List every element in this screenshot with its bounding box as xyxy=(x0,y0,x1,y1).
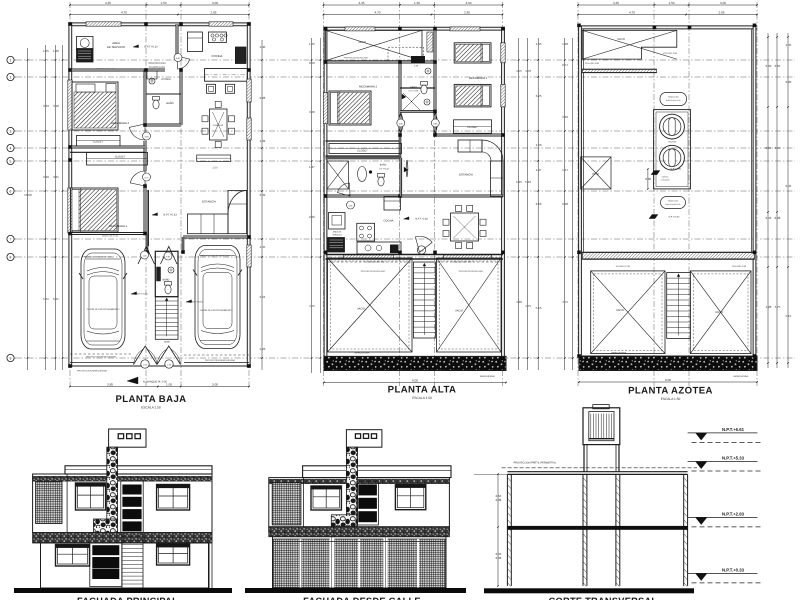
svg-text:1.50: 1.50 xyxy=(160,1,166,5)
svg-text:AZOTEA: AZOTEA xyxy=(662,176,670,179)
svg-text:N.P.T.+2.83: N.P.T.+2.83 xyxy=(409,90,419,93)
svg-text:AREA DE: AREA DE xyxy=(333,231,342,234)
svg-text:6: 6 xyxy=(10,189,12,193)
svg-text:3.33: 3.33 xyxy=(43,104,49,108)
svg-text:ESCALA 1:50: ESCALA 1:50 xyxy=(412,396,432,400)
svg-text:PROYECCION MARQUESINA: PROYECCION MARQUESINA xyxy=(86,356,117,359)
svg-text:BAÑO: BAÑO xyxy=(166,101,173,105)
svg-text:N.P.T.+0.15: N.P.T.+0.15 xyxy=(191,301,203,304)
svg-text:N.P.T.+2.83: N.P.T.+2.83 xyxy=(722,511,745,516)
svg-text:4.75: 4.75 xyxy=(525,304,531,308)
svg-text:BAÑO: BAÑO xyxy=(163,278,170,282)
svg-text:4.75: 4.75 xyxy=(774,305,780,309)
svg-text:4.28: 4.28 xyxy=(516,300,522,304)
svg-text:2.85: 2.85 xyxy=(464,10,470,14)
svg-text:RECAMARA 1: RECAMARA 1 xyxy=(469,76,487,80)
svg-text:PROYECCION PRETIL PERIMETRAL: PROYECCION PRETIL PERIMETRAL xyxy=(514,462,557,465)
svg-text:3.90: 3.90 xyxy=(43,175,49,179)
svg-text:3.47: 3.47 xyxy=(774,146,780,150)
svg-text:VENTANA 1.05 X 1.00: VENTANA 1.05 X 1.00 xyxy=(96,67,114,70)
svg-text:3.35: 3.35 xyxy=(358,1,364,5)
svg-text:BARDA 1.80 X 6.00: BARDA 1.80 X 6.00 xyxy=(102,235,118,238)
svg-text:2.98: 2.98 xyxy=(774,216,780,220)
svg-text:A TINACOS: A TINACOS xyxy=(661,179,671,182)
svg-text:2.98: 2.98 xyxy=(562,202,568,206)
svg-text:N. BANQUETA -0.30: N. BANQUETA -0.30 xyxy=(143,381,167,384)
svg-text:N.P.T.+2.83: N.P.T.+2.83 xyxy=(415,218,428,221)
svg-text:MARQUESINA: MARQUESINA xyxy=(611,352,626,355)
svg-text:8.00: 8.00 xyxy=(412,378,418,382)
svg-text:3.81: 3.81 xyxy=(53,175,59,179)
svg-text:1.02: 1.02 xyxy=(259,139,265,143)
svg-text:N.P.T.+0.33: N.P.T.+0.33 xyxy=(722,567,745,572)
svg-text:VACIO: VACIO xyxy=(358,41,366,44)
svg-text:3.00: 3.00 xyxy=(212,1,218,5)
svg-text:SUBE: SUBE xyxy=(164,341,170,344)
svg-text:N.P.T.+6.61: N.P.T.+6.61 xyxy=(722,427,745,432)
svg-text:ESTANCIA: ESTANCIA xyxy=(459,173,473,177)
svg-text:TINACO 450: TINACO 450 xyxy=(668,200,678,203)
svg-text:5.41: 5.41 xyxy=(43,297,49,301)
svg-text:FACHADA DESDE CALLE: FACHADA DESDE CALLE xyxy=(303,596,421,600)
svg-text:VOLADO 0.90: VOLADO 0.90 xyxy=(585,62,600,65)
svg-text:PROYECCION VOLADO: PROYECCION VOLADO xyxy=(361,270,386,273)
svg-text:1.37: 1.37 xyxy=(536,168,542,172)
svg-text:PROYECCION VOLADO: PROYECCION VOLADO xyxy=(344,57,369,60)
svg-text:VACIO: VACIO xyxy=(715,311,723,314)
svg-text:1.05: 1.05 xyxy=(536,143,542,147)
svg-text:1.50: 1.50 xyxy=(414,1,420,5)
svg-text:CORTE TRANSVERSAL: CORTE TRANSVERSAL xyxy=(549,596,658,600)
svg-text:0.90: 0.90 xyxy=(176,57,180,60)
svg-text:VOLADO 0.30: VOLADO 0.30 xyxy=(732,265,747,268)
svg-text:CLOSET: CLOSET xyxy=(115,156,126,159)
svg-text:VACIO: VACIO xyxy=(617,38,625,41)
svg-text:CAJON DE ESTACIONAMIENTO: CAJON DE ESTACIONAMIENTO xyxy=(87,308,120,311)
svg-text:VOLADO 0.30: VOLADO 0.30 xyxy=(616,265,631,268)
svg-text:N.P.T.+5.81: N.P.T.+5.81 xyxy=(671,168,682,171)
svg-text:5.01: 5.01 xyxy=(53,297,59,301)
svg-text:0.80: 0.80 xyxy=(433,122,437,125)
svg-text:ESCALA 1:50: ESCALA 1:50 xyxy=(661,397,681,401)
svg-text:RECAMARA 2: RECAMARA 2 xyxy=(111,121,129,125)
svg-text:VACIO: VACIO xyxy=(592,173,599,176)
svg-text:CAJON DE ESTACIONAMIENTO: CAJON DE ESTACIONAMIENTO xyxy=(200,309,233,312)
svg-text:PLANTA BAJA: PLANTA BAJA xyxy=(115,394,186,405)
svg-text:PROYECCION PLANTA ALTA: PROYECCION PLANTA ALTA xyxy=(82,256,112,259)
svg-text:LETRINA: LETRINA xyxy=(161,78,171,81)
svg-text:2: 2 xyxy=(10,75,12,79)
svg-text:1.05: 1.05 xyxy=(43,49,49,53)
svg-text:N.P.T.+2.83: N.P.T.+2.83 xyxy=(379,168,389,171)
svg-text:RECAMARA 2: RECAMARA 2 xyxy=(359,85,377,89)
svg-text:4.55: 4.55 xyxy=(516,69,522,73)
svg-text:3.00: 3.00 xyxy=(465,1,471,5)
svg-text:3.32: 3.32 xyxy=(765,146,771,150)
svg-text:PROYECCION MARQUESINA: PROYECCION MARQUESINA xyxy=(205,359,236,362)
svg-text:2.20: 2.20 xyxy=(785,80,791,84)
svg-text:0.80: 0.80 xyxy=(145,135,149,138)
svg-text:2.06: 2.06 xyxy=(309,215,315,219)
svg-text:1.50: 1.50 xyxy=(668,1,674,5)
svg-text:N.P.T.+0.33: N.P.T.+0.33 xyxy=(163,214,177,217)
svg-text:0.57: 0.57 xyxy=(562,63,568,67)
svg-text:SERVICIO: SERVICIO xyxy=(332,234,342,237)
svg-text:1.45: 1.45 xyxy=(259,245,265,249)
svg-text:1.00: 1.00 xyxy=(143,254,147,257)
svg-text:8: 8 xyxy=(10,255,12,259)
svg-text:0.75: 0.75 xyxy=(145,176,149,179)
svg-text:2.66: 2.66 xyxy=(536,202,542,206)
svg-text:1.00: 1.00 xyxy=(166,382,172,386)
svg-text:PLANTA AZOTEA: PLANTA AZOTEA xyxy=(628,386,713,397)
svg-text:4: 4 xyxy=(10,146,12,150)
svg-text:2.38: 2.38 xyxy=(495,498,501,502)
svg-text:2.38: 2.38 xyxy=(495,556,501,560)
svg-text:0.80: 0.80 xyxy=(166,255,170,258)
svg-text:1.50: 1.50 xyxy=(212,167,218,170)
svg-text:3.49: 3.49 xyxy=(259,193,265,197)
svg-text:COCINA: COCINA xyxy=(212,54,223,58)
svg-text:N.P.T.+0.15: N.P.T.+0.15 xyxy=(136,293,148,296)
svg-text:1.45: 1.45 xyxy=(536,42,542,46)
svg-text:4.75: 4.75 xyxy=(309,304,315,308)
svg-text:3.40: 3.40 xyxy=(309,110,315,114)
svg-text:0.80: 0.80 xyxy=(399,122,403,125)
svg-text:VACIO: VACIO xyxy=(616,309,624,312)
svg-text:MARQUESINA: MARQUESINA xyxy=(734,375,749,378)
svg-text:PROYECCION VOLADO: PROYECCION VOLADO xyxy=(459,270,484,273)
svg-text:PLANTA ALTA: PLANTA ALTA xyxy=(388,385,457,396)
svg-text:TINACO 450: TINACO 450 xyxy=(668,96,678,99)
svg-text:4.75: 4.75 xyxy=(562,300,568,304)
svg-text:RECAMARA 1: RECAMARA 1 xyxy=(109,224,127,228)
svg-text:COCINA: COCINA xyxy=(383,220,393,223)
svg-text:4.70: 4.70 xyxy=(374,10,380,14)
svg-text:5: 5 xyxy=(10,159,12,163)
svg-text:5.15: 5.15 xyxy=(785,314,791,318)
svg-text:3.40: 3.40 xyxy=(562,115,568,119)
svg-text:1: 1 xyxy=(10,58,12,62)
svg-text:2.85: 2.85 xyxy=(210,10,216,14)
svg-text:4.70: 4.70 xyxy=(525,69,531,73)
svg-text:1.45: 1.45 xyxy=(785,43,791,47)
svg-text:VOLADO 0.90: VOLADO 0.90 xyxy=(663,52,678,55)
svg-text:2.28: 2.28 xyxy=(259,96,265,100)
svg-text:1.38: 1.38 xyxy=(562,42,568,46)
svg-text:2.85: 2.85 xyxy=(718,10,724,14)
svg-text:DE SERVICIO: DE SERVICIO xyxy=(107,45,126,49)
svg-text:PLANTA ALTA: PLANTA ALTA xyxy=(149,66,165,69)
svg-text:1.60: 1.60 xyxy=(53,49,59,53)
svg-text:3.24: 3.24 xyxy=(259,295,265,299)
svg-text:0.60: 0.60 xyxy=(645,177,651,181)
svg-text:VACIO: VACIO xyxy=(357,308,365,311)
svg-text:3.65: 3.65 xyxy=(774,64,780,68)
svg-text:ESCALA 1:50: ESCALA 1:50 xyxy=(141,406,161,410)
svg-text:MARQUESINA: MARQUESINA xyxy=(355,352,370,355)
svg-text:N.P.T.+5.33: N.P.T.+5.33 xyxy=(722,455,745,460)
svg-text:1.23: 1.23 xyxy=(259,347,265,351)
svg-text:3.00: 3.00 xyxy=(720,1,726,5)
svg-text:N.P.T.+5.33: N.P.T.+5.33 xyxy=(669,215,680,218)
svg-text:1.37: 1.37 xyxy=(562,168,568,172)
svg-text:VACIO: VACIO xyxy=(455,310,463,313)
svg-text:FACHADA PRINCIPAL: FACHADA PRINCIPAL xyxy=(77,596,178,600)
svg-text:PROYECCION: PROYECCION xyxy=(149,62,166,65)
svg-text:3.50: 3.50 xyxy=(765,64,771,68)
svg-text:MARQUESINA: MARQUESINA xyxy=(480,375,495,378)
svg-text:3.18: 3.18 xyxy=(53,104,59,108)
svg-text:6.45: 6.45 xyxy=(785,184,791,188)
svg-text:CLOSET: CLOSET xyxy=(357,150,368,153)
svg-text:1.40: 1.40 xyxy=(259,45,265,49)
svg-text:CLOSET: CLOSET xyxy=(93,141,104,144)
svg-text:3.35: 3.35 xyxy=(105,1,111,5)
svg-text:1.37: 1.37 xyxy=(309,165,315,169)
svg-text:ESTANCIA: ESTANCIA xyxy=(202,200,216,204)
svg-text:TINACOS: TINACOS xyxy=(668,141,677,144)
svg-text:7: 7 xyxy=(10,237,12,241)
svg-text:3.35: 3.35 xyxy=(613,1,619,5)
svg-text:0.50: 0.50 xyxy=(309,61,315,65)
svg-text:4.70: 4.70 xyxy=(629,10,635,14)
svg-text:5.25: 5.25 xyxy=(516,180,522,184)
svg-text:1.45: 1.45 xyxy=(309,42,315,46)
svg-text:8.00: 8.00 xyxy=(665,378,671,382)
svg-text:PROYECCION MARQUESINA: PROYECCION MARQUESINA xyxy=(77,370,108,373)
svg-text:CLOSET: CLOSET xyxy=(467,126,478,129)
svg-text:3.85: 3.85 xyxy=(107,382,113,386)
svg-text:3.00: 3.00 xyxy=(212,382,218,386)
svg-text:2.43: 2.43 xyxy=(765,216,771,220)
svg-text:9: 9 xyxy=(10,356,12,360)
svg-text:COMEDOR: COMEDOR xyxy=(213,124,224,127)
svg-text:15.00: 15.00 xyxy=(24,193,32,197)
svg-text:4.70: 4.70 xyxy=(121,10,127,14)
svg-text:PROYECCION PLANTA ALTA: PROYECCION PLANTA ALTA xyxy=(200,255,230,258)
svg-text:N.P.T.+0.15: N.P.T.+0.15 xyxy=(144,46,158,49)
svg-text:3.25: 3.25 xyxy=(536,94,542,98)
svg-text:3: 3 xyxy=(10,129,12,133)
svg-text:5.15: 5.15 xyxy=(536,306,542,310)
svg-text:4.28: 4.28 xyxy=(765,305,771,309)
svg-text:5.40: 5.40 xyxy=(525,180,531,184)
